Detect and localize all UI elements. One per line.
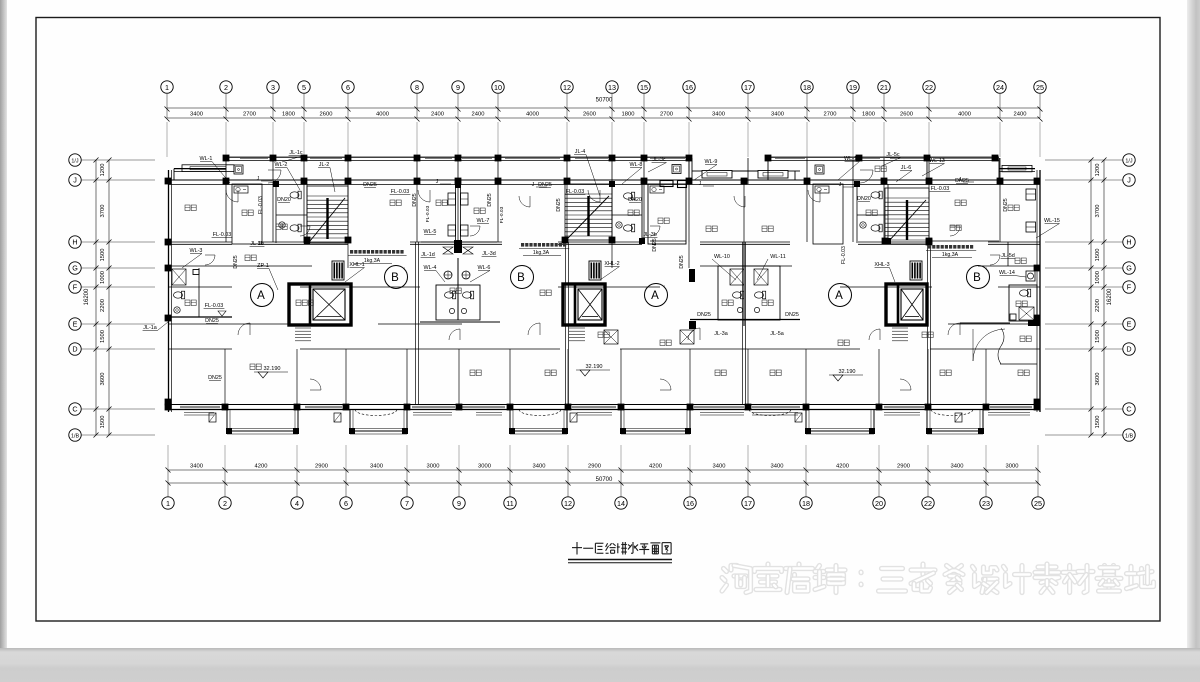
svg-text:WL-8: WL-8 xyxy=(630,162,643,168)
svg-text:J: J xyxy=(257,176,260,182)
svg-text:10: 10 xyxy=(494,83,502,92)
svg-text:2400: 2400 xyxy=(472,112,485,118)
svg-text:2400: 2400 xyxy=(1014,112,1027,118)
svg-text:1800: 1800 xyxy=(862,112,875,118)
svg-text:23: 23 xyxy=(982,499,990,508)
svg-text:WL-10: WL-10 xyxy=(714,254,730,260)
svg-text:J: J xyxy=(699,181,702,187)
svg-text:1000: 1000 xyxy=(1095,271,1101,284)
svg-text:22: 22 xyxy=(925,83,933,92)
svg-text:4200: 4200 xyxy=(649,463,662,469)
svg-text:3700: 3700 xyxy=(100,205,106,218)
svg-text:DN25: DN25 xyxy=(955,178,969,184)
svg-text:JL-3c: JL-3c xyxy=(652,157,665,163)
svg-text:2700: 2700 xyxy=(243,112,256,118)
svg-text:A: A xyxy=(835,290,843,302)
svg-text:H: H xyxy=(1126,238,1131,247)
svg-text:JL-1d: JL-1d xyxy=(421,252,435,258)
svg-text:25: 25 xyxy=(1036,83,1044,92)
svg-text:50700: 50700 xyxy=(596,98,613,104)
svg-text:JL-1b: JL-1b xyxy=(250,241,264,247)
svg-text:DN25: DN25 xyxy=(363,182,377,188)
svg-text:2900: 2900 xyxy=(588,463,601,469)
svg-text:1500: 1500 xyxy=(100,249,106,262)
svg-text:A: A xyxy=(651,290,659,302)
svg-text:3600: 3600 xyxy=(1095,373,1101,386)
svg-text:J: J xyxy=(1127,176,1131,185)
svg-text:WL-14: WL-14 xyxy=(999,270,1015,276)
svg-text:3400: 3400 xyxy=(533,463,546,469)
svg-text:21: 21 xyxy=(880,83,888,92)
svg-text:2200: 2200 xyxy=(100,299,106,312)
svg-text:22: 22 xyxy=(924,499,932,508)
svg-text:FL-0.03: FL-0.03 xyxy=(931,186,950,192)
svg-text:13: 13 xyxy=(608,83,616,92)
svg-text:11: 11 xyxy=(506,499,513,508)
svg-text:WL-5: WL-5 xyxy=(424,229,437,235)
svg-text:G: G xyxy=(72,264,78,273)
svg-text:1500: 1500 xyxy=(1095,249,1101,262)
svg-text:18: 18 xyxy=(803,83,811,92)
svg-text:4200: 4200 xyxy=(836,463,849,469)
svg-text:2600: 2600 xyxy=(583,112,596,118)
svg-text:DN25: DN25 xyxy=(652,238,658,251)
svg-text:FL-0.03: FL-0.03 xyxy=(499,206,505,223)
svg-text:DN25: DN25 xyxy=(205,318,219,324)
svg-text:DN25: DN25 xyxy=(1003,198,1009,211)
svg-text:50700: 50700 xyxy=(596,477,613,483)
svg-text:DN25: DN25 xyxy=(785,312,799,318)
svg-text:1500: 1500 xyxy=(100,416,106,429)
svg-text:H: H xyxy=(72,238,77,247)
svg-text:1800: 1800 xyxy=(282,112,295,118)
svg-text:4200: 4200 xyxy=(255,463,268,469)
svg-text:′: ′ xyxy=(985,268,987,274)
svg-text:16: 16 xyxy=(685,83,693,92)
svg-text:3000: 3000 xyxy=(1006,463,1019,469)
svg-text:FL-0.03: FL-0.03 xyxy=(841,246,847,264)
svg-text:J: J xyxy=(532,182,535,188)
svg-text:1500: 1500 xyxy=(1095,416,1101,429)
svg-text:DN25: DN25 xyxy=(233,255,239,268)
svg-text:C: C xyxy=(72,405,77,414)
svg-text:DN25: DN25 xyxy=(487,193,493,206)
svg-text:A: A xyxy=(257,290,265,302)
svg-text:5: 5 xyxy=(302,83,306,92)
svg-text:F: F xyxy=(1127,283,1132,292)
svg-text:3400: 3400 xyxy=(370,463,383,469)
svg-text:1500: 1500 xyxy=(100,330,106,343)
svg-text:16: 16 xyxy=(686,499,694,508)
svg-text:32.190: 32.190 xyxy=(585,364,602,370)
svg-text:DN20: DN20 xyxy=(277,197,291,203)
svg-text:1500: 1500 xyxy=(1095,330,1101,343)
svg-text:12: 12 xyxy=(563,83,571,92)
svg-text:6: 6 xyxy=(346,83,350,92)
svg-text:XHL-3: XHL-3 xyxy=(874,262,889,268)
svg-text:32.190: 32.190 xyxy=(263,366,280,372)
svg-text:E: E xyxy=(73,320,78,329)
svg-text:2: 2 xyxy=(223,499,227,508)
svg-text:1kg,3A: 1kg,3A xyxy=(942,252,959,258)
svg-text:FL-0.03: FL-0.03 xyxy=(391,189,410,195)
svg-text:2: 2 xyxy=(224,83,228,92)
svg-text:4000: 4000 xyxy=(958,112,971,118)
svg-text:B: B xyxy=(973,272,981,284)
svg-text:3700: 3700 xyxy=(1095,205,1101,218)
svg-text:19: 19 xyxy=(849,83,857,92)
svg-text:1/J: 1/J xyxy=(1125,159,1132,165)
svg-text:WL-3: WL-3 xyxy=(190,248,203,254)
svg-text:1/B: 1/B xyxy=(1125,434,1133,440)
svg-text:DN20: DN20 xyxy=(857,196,871,202)
svg-text:DN25: DN25 xyxy=(556,198,562,211)
svg-text:DN25: DN25 xyxy=(679,255,685,268)
svg-text:D: D xyxy=(1126,345,1131,354)
svg-text:XHL-1: XHL-1 xyxy=(349,262,364,268)
svg-text:′: ′ xyxy=(529,268,531,274)
svg-text:1/B: 1/B xyxy=(71,434,79,440)
svg-text:FL-0.03: FL-0.03 xyxy=(213,232,232,238)
svg-text:3000: 3000 xyxy=(427,463,440,469)
svg-text:32.190: 32.190 xyxy=(838,369,855,375)
svg-text:JL-5d: JL-5d xyxy=(1001,253,1015,259)
svg-text:D: D xyxy=(72,345,77,354)
svg-text:2600: 2600 xyxy=(900,112,913,118)
svg-text:17: 17 xyxy=(744,499,752,508)
svg-text:1800: 1800 xyxy=(622,112,635,118)
svg-text:J: J xyxy=(839,182,842,188)
svg-text:3400: 3400 xyxy=(190,463,203,469)
svg-text:1200: 1200 xyxy=(1095,164,1101,177)
svg-text:JL-1a: JL-1a xyxy=(143,325,157,331)
svg-text:JL-4: JL-4 xyxy=(575,149,586,155)
svg-text:DN25: DN25 xyxy=(208,375,222,381)
svg-text:B: B xyxy=(517,272,525,284)
svg-text:ZP-1: ZP-1 xyxy=(257,263,269,269)
svg-text:WL-6: WL-6 xyxy=(478,265,491,271)
svg-text:B: B xyxy=(391,272,399,284)
svg-text:18: 18 xyxy=(802,499,810,508)
svg-text:J: J xyxy=(73,176,77,185)
svg-text:WL-7: WL-7 xyxy=(477,218,490,224)
svg-text:2700: 2700 xyxy=(660,112,673,118)
svg-text:24: 24 xyxy=(996,83,1004,92)
svg-text:12: 12 xyxy=(564,499,572,508)
svg-text:2200: 2200 xyxy=(1095,299,1101,312)
svg-text:1kg,3A: 1kg,3A xyxy=(533,250,550,256)
svg-text:1: 1 xyxy=(165,83,169,92)
svg-text:1/J: 1/J xyxy=(71,159,78,165)
svg-text:E: E xyxy=(1127,320,1132,329)
svg-text:WL-9: WL-9 xyxy=(705,159,718,165)
svg-text:JL-6: JL-6 xyxy=(901,165,912,171)
svg-text:16200: 16200 xyxy=(84,288,90,305)
svg-text:DN25: DN25 xyxy=(412,193,418,206)
svg-text:′: ′ xyxy=(269,286,271,292)
svg-text:C: C xyxy=(1126,405,1131,414)
svg-text:14: 14 xyxy=(617,499,625,508)
svg-text:3400: 3400 xyxy=(713,463,726,469)
svg-text:15: 15 xyxy=(640,83,648,92)
svg-text:JL-5c: JL-5c xyxy=(886,152,899,158)
svg-text:1200: 1200 xyxy=(100,164,106,177)
svg-text:1000: 1000 xyxy=(100,271,106,284)
svg-text:JL-3d: JL-3d xyxy=(482,251,496,257)
svg-text:F: F xyxy=(73,283,78,292)
svg-text:1: 1 xyxy=(166,499,170,508)
svg-text:WL-2: WL-2 xyxy=(275,162,288,168)
svg-text:′: ′ xyxy=(403,268,405,274)
svg-text:2700: 2700 xyxy=(824,112,837,118)
svg-text:3400: 3400 xyxy=(951,463,964,469)
svg-text:1kg,3A: 1kg,3A xyxy=(364,258,381,264)
svg-text:XHL-2: XHL-2 xyxy=(604,261,619,267)
svg-text:20: 20 xyxy=(875,499,883,508)
svg-text:3600: 3600 xyxy=(100,373,106,386)
svg-text:16200: 16200 xyxy=(1107,288,1113,305)
svg-text:3400: 3400 xyxy=(771,463,784,469)
svg-text:25: 25 xyxy=(1034,499,1042,508)
svg-text:17: 17 xyxy=(744,83,752,92)
svg-text:2900: 2900 xyxy=(315,463,328,469)
svg-text:WL-4: WL-4 xyxy=(424,265,437,271)
svg-text:2400: 2400 xyxy=(431,112,444,118)
svg-text:4000: 4000 xyxy=(376,112,389,118)
svg-text:2600: 2600 xyxy=(320,112,333,118)
svg-text:JL-2: JL-2 xyxy=(319,162,330,168)
svg-text:4: 4 xyxy=(295,499,299,508)
svg-text:FL-0.03: FL-0.03 xyxy=(205,303,224,309)
svg-text:WL-13: WL-13 xyxy=(929,158,945,164)
svg-text:2900: 2900 xyxy=(897,463,910,469)
svg-text:3400: 3400 xyxy=(771,112,784,118)
svg-text:JL-5a: JL-5a xyxy=(770,331,784,337)
svg-text:3000: 3000 xyxy=(478,463,491,469)
svg-text:WL-12: WL-12 xyxy=(844,156,860,162)
svg-text:4000: 4000 xyxy=(526,112,539,118)
svg-text:JL-3a: JL-3a xyxy=(714,331,728,337)
svg-text:6: 6 xyxy=(344,499,348,508)
svg-text:3: 3 xyxy=(271,83,275,92)
svg-text:′: ′ xyxy=(663,286,665,292)
svg-text:WL-11: WL-11 xyxy=(770,254,785,260)
svg-text:JL-1c: JL-1c xyxy=(289,150,302,156)
svg-text:7: 7 xyxy=(405,499,409,508)
svg-text:G: G xyxy=(1126,264,1132,273)
svg-text:3400: 3400 xyxy=(190,112,203,118)
svg-text:9: 9 xyxy=(456,83,460,92)
svg-text:WL-15: WL-15 xyxy=(1044,218,1060,224)
svg-text:DN25: DN25 xyxy=(697,312,711,318)
svg-text:FL-0.03: FL-0.03 xyxy=(566,189,585,195)
svg-text:3400: 3400 xyxy=(712,112,725,118)
svg-text:FL-0.03: FL-0.03 xyxy=(425,205,431,222)
svg-text:WL-1: WL-1 xyxy=(200,156,213,162)
svg-text:9: 9 xyxy=(457,499,461,508)
svg-text:DN20: DN20 xyxy=(628,197,642,203)
svg-text:8: 8 xyxy=(415,83,419,92)
svg-text:JL-3b: JL-3b xyxy=(643,232,657,238)
svg-text:FL-0.03: FL-0.03 xyxy=(258,196,264,214)
